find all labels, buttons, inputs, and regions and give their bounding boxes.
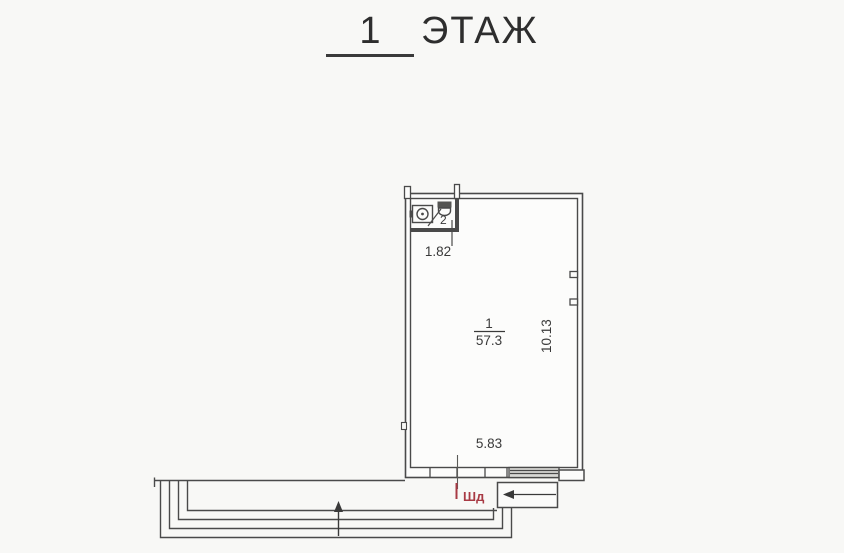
window-hatch <box>509 468 559 478</box>
floor-plan-drawing: 2 1.82 1 57.3 10.13 5.83 Шд <box>0 0 844 553</box>
floor-plan-page: 1 ЭТАЖ <box>0 0 844 553</box>
left-wall-notch <box>402 423 407 430</box>
bathroom-width-dim: 1.82 <box>425 244 451 259</box>
wall-end-cap <box>559 470 584 481</box>
entry-up-arrow <box>334 501 343 536</box>
bathroom-wall-stub <box>455 185 460 199</box>
right-wall-nub-2 <box>570 299 578 305</box>
bathroom-number-label: 2 <box>440 213 447 227</box>
porch-step-3 <box>179 481 494 520</box>
top-left-wall-stub <box>405 187 411 199</box>
width-dim-label: 5.83 <box>476 436 502 451</box>
height-dim-label: 10.13 <box>539 319 554 353</box>
room-area-label: 57.3 <box>476 333 502 348</box>
porch-step-2 <box>170 481 503 529</box>
room-number-label: 1 <box>485 316 493 331</box>
door-mark-label: Шд <box>463 489 485 504</box>
porch-step-inner <box>188 481 498 511</box>
right-wall-nub-1 <box>570 272 578 278</box>
